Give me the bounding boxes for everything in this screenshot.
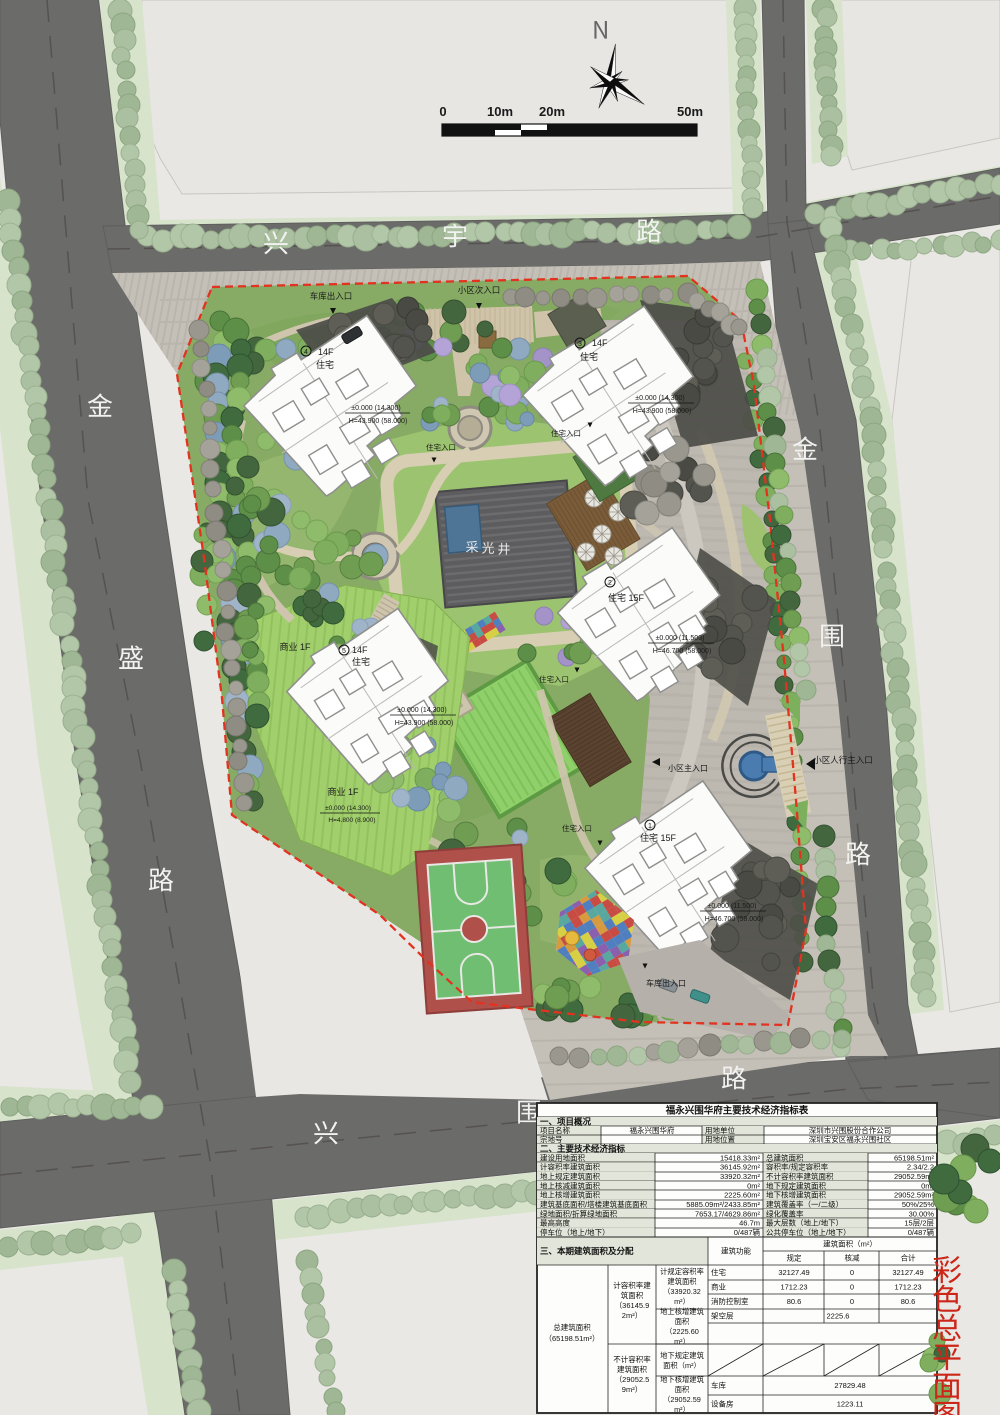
svg-text:筑面积: 筑面积: [621, 1290, 644, 1300]
svg-text:消防控制室: 消防控制室: [711, 1296, 749, 1306]
svg-text:小区次入口: 小区次入口: [458, 285, 501, 295]
svg-text:最大层数（地上/地下）: 最大层数（地上/地下）: [766, 1218, 843, 1228]
svg-text:绿地面积/折算绿地面积: 绿地面积/折算绿地面积: [540, 1208, 618, 1218]
svg-text:H=43.900 (58.000): H=43.900 (58.000): [395, 720, 454, 727]
svg-text:公共停车位（地上/地下）: 公共停车位（地上/地下）: [766, 1227, 851, 1237]
svg-text:（36145.9: （36145.9: [615, 1301, 650, 1310]
svg-text:建筑面积（m²）: 建筑面积（m²）: [823, 1239, 877, 1249]
svg-text:3: 3: [578, 341, 582, 348]
svg-text:32127.49: 32127.49: [778, 1268, 809, 1277]
svg-text:0/487辆: 0/487辆: [734, 1227, 761, 1237]
svg-text:总建筑面积: 总建筑面积: [553, 1322, 591, 1332]
svg-text:计规定容积率: 计规定容积率: [660, 1267, 704, 1276]
svg-text:绿化覆盖率: 绿化覆盖率: [766, 1208, 804, 1218]
svg-text:0: 0: [850, 1283, 854, 1292]
svg-text:用地单位: 用地单位: [705, 1125, 735, 1135]
svg-text:36145.92m²: 36145.92m²: [720, 1163, 761, 1172]
svg-text:7653.17/4629.86m²: 7653.17/4629.86m²: [695, 1209, 761, 1218]
svg-text:46.7m: 46.7m: [739, 1219, 760, 1228]
svg-text:最高高度: 最高高度: [540, 1218, 570, 1228]
svg-text:小区主入口: 小区主入口: [668, 763, 708, 773]
svg-text:核减: 核减: [845, 1253, 860, 1263]
svg-text:二、主要技术经济指标: 二、主要技术经济指标: [540, 1144, 626, 1154]
svg-text:建设用地面积: 建设用地面积: [540, 1152, 585, 1162]
svg-text:面积: 面积: [675, 1385, 690, 1394]
svg-text:0m²: 0m²: [747, 1181, 760, 1190]
svg-text:总建筑面积: 总建筑面积: [766, 1152, 804, 1162]
svg-text:小区人行主入口: 小区人行主入口: [813, 755, 873, 765]
svg-text:商业 1F: 商业 1F: [327, 786, 359, 797]
svg-text:（33920.32: （33920.32: [663, 1287, 701, 1296]
svg-text:H=46.700 (58.000): H=46.700 (58.000): [705, 916, 764, 923]
svg-text:2225.6: 2225.6: [827, 1312, 850, 1321]
svg-text:地下核增建筑面积: 地下核增建筑面积: [766, 1190, 826, 1200]
svg-text:建筑面积: 建筑面积: [667, 1277, 696, 1286]
svg-text:建筑功能: 建筑功能: [721, 1246, 751, 1256]
svg-text:14F: 14F: [592, 338, 608, 348]
svg-text:±0.000 (11.500): ±0.000 (11.500): [656, 635, 705, 642]
svg-text:27829.48: 27829.48: [834, 1381, 865, 1390]
svg-text:14F: 14F: [352, 645, 368, 655]
svg-text:（29052.59: （29052.59: [663, 1395, 701, 1404]
svg-text:深圳宝安区福永兴围社区: 深圳宝安区福永兴围社区: [809, 1134, 892, 1144]
svg-text:地上核减建筑面积: 地上核减建筑面积: [540, 1180, 600, 1190]
svg-text:5885.09m²/2433.85m²: 5885.09m²/2433.85m²: [686, 1200, 760, 1209]
svg-text:50m: 50m: [677, 104, 703, 119]
svg-text:H=43.900 (58.000): H=43.900 (58.000): [349, 418, 408, 425]
svg-text:住宅入口: 住宅入口: [539, 674, 569, 684]
svg-text:H=43.900 (58.000): H=43.900 (58.000): [633, 408, 692, 415]
svg-text:15层/2层: 15层/2层: [904, 1219, 934, 1228]
svg-text:住宅入口: 住宅入口: [426, 442, 456, 452]
svg-text:设备房: 设备房: [711, 1399, 734, 1409]
svg-text:车库出入口: 车库出入口: [310, 291, 353, 301]
svg-text:m²）: m²）: [674, 1405, 690, 1414]
svg-text:架空层: 架空层: [711, 1311, 734, 1321]
svg-text:住宅入口: 住宅入口: [551, 428, 581, 438]
svg-text:规定: 规定: [787, 1253, 802, 1263]
svg-text:2m²）: 2m²）: [622, 1311, 642, 1320]
svg-text:深圳市兴围股份合作公司: 深圳市兴围股份合作公司: [809, 1125, 892, 1135]
svg-text:住宅 15F: 住宅 15F: [640, 832, 677, 843]
svg-text:20m: 20m: [539, 104, 565, 119]
svg-text:±0.000 (14.300): ±0.000 (14.300): [325, 805, 371, 812]
svg-text:65198.51m²: 65198.51m²: [894, 1153, 935, 1162]
svg-text:项目名称: 项目名称: [540, 1125, 570, 1135]
svg-text:1: 1: [648, 823, 652, 830]
svg-text:住宅: 住宅: [580, 351, 598, 362]
svg-text:福永兴围华府主要技术经济指标表: 福永兴围华府主要技术经济指标表: [665, 1104, 809, 1116]
svg-text:（29052.5: （29052.5: [615, 1375, 650, 1384]
svg-text:29052.59m²: 29052.59m²: [894, 1172, 935, 1181]
svg-text:±0.000 (14.300): ±0.000 (14.300): [397, 707, 446, 714]
svg-text:用地位置: 用地位置: [705, 1134, 735, 1144]
svg-text:50%/25%: 50%/25%: [902, 1200, 934, 1209]
svg-text:2: 2: [608, 580, 612, 587]
svg-text:80.6: 80.6: [901, 1297, 916, 1306]
svg-text:±0.000 (11.500): ±0.000 (11.500): [708, 903, 757, 910]
svg-text:住宅: 住宅: [711, 1267, 726, 1277]
svg-text:15418.33m²: 15418.33m²: [720, 1153, 761, 1162]
svg-text:面积（m²）: 面积（m²）: [663, 1361, 701, 1370]
svg-text:10m: 10m: [487, 104, 513, 119]
svg-text:不计容积率: 不计容积率: [613, 1354, 651, 1364]
svg-text:车库出入口: 车库出入口: [646, 978, 686, 988]
svg-text:33920.32m²: 33920.32m²: [720, 1172, 761, 1181]
svg-text:1223.11: 1223.11: [837, 1400, 864, 1409]
svg-text:±0.000 (14.300): ±0.000 (14.300): [635, 395, 684, 402]
svg-text:地上规定建筑面积: 地上规定建筑面积: [540, 1171, 600, 1181]
svg-text:H=46.700 (58.000): H=46.700 (58.000): [653, 648, 712, 655]
svg-text:商业 1F: 商业 1F: [279, 641, 311, 652]
svg-text:面积: 面积: [675, 1317, 690, 1326]
svg-text:福永兴围华府: 福永兴围华府: [630, 1125, 675, 1135]
svg-text:地下规定建筑: 地下规定建筑: [660, 1351, 704, 1360]
svg-text:地上核增建筑: 地上核增建筑: [660, 1307, 704, 1316]
svg-text:住宅: 住宅: [316, 359, 334, 370]
svg-text:住宅: 住宅: [352, 656, 370, 667]
svg-text:29052.59m²: 29052.59m²: [894, 1191, 935, 1200]
svg-text:2.34/2.2: 2.34/2.2: [907, 1163, 934, 1172]
svg-text:住宅 15F: 住宅 15F: [608, 592, 645, 603]
svg-text:一、项目概况: 一、项目概况: [540, 1117, 592, 1127]
svg-text:三、本期建筑面积及分配: 三、本期建筑面积及分配: [540, 1246, 634, 1256]
svg-text:0: 0: [850, 1268, 854, 1277]
svg-text:0: 0: [439, 104, 446, 119]
svg-text:建筑面积: 建筑面积: [617, 1364, 647, 1374]
svg-text:80.6: 80.6: [787, 1297, 802, 1306]
svg-text:0: 0: [850, 1297, 854, 1306]
svg-text:5: 5: [342, 648, 346, 655]
svg-text:1712.23: 1712.23: [894, 1283, 921, 1292]
svg-text:停车位（地上/地下）: 停车位（地上/地下）: [540, 1227, 610, 1237]
svg-text:合计: 合计: [901, 1253, 916, 1263]
svg-text:地上核增建筑面积: 地上核增建筑面积: [540, 1190, 600, 1200]
svg-text:1712.23: 1712.23: [780, 1283, 807, 1292]
svg-text:车库: 车库: [711, 1380, 726, 1390]
svg-text:商业: 商业: [711, 1282, 726, 1292]
svg-text:±0.000 (14.300): ±0.000 (14.300): [351, 405, 400, 412]
svg-text:m²）: m²）: [674, 1337, 690, 1346]
svg-text:建筑覆盖率（一/二级）: 建筑覆盖率（一/二级）: [766, 1199, 843, 1209]
svg-text:不计容积率建筑面积: 不计容积率建筑面积: [766, 1171, 834, 1181]
svg-text:住宅入口: 住宅入口: [562, 823, 592, 833]
svg-text:地下规定建筑面积: 地下规定建筑面积: [766, 1180, 826, 1190]
svg-text:建筑基底面积/塔楼建筑基底面积: 建筑基底面积/塔楼建筑基底面积: [540, 1199, 648, 1209]
svg-text:9m²）: 9m²）: [622, 1385, 642, 1394]
svg-text:4: 4: [304, 349, 308, 356]
svg-text:（65198.51m²）: （65198.51m²）: [544, 1334, 599, 1343]
svg-text:30.00%: 30.00%: [909, 1209, 935, 1218]
svg-text:H=4.800 (8.900): H=4.800 (8.900): [328, 817, 375, 824]
svg-text:14F: 14F: [318, 347, 334, 357]
svg-text:计容积率建: 计容积率建: [613, 1280, 651, 1290]
svg-text:m²）: m²）: [674, 1297, 690, 1306]
svg-text:2225.60m²: 2225.60m²: [724, 1191, 760, 1200]
svg-text:32127.49: 32127.49: [892, 1268, 923, 1277]
svg-text:（2225.60: （2225.60: [665, 1327, 699, 1336]
svg-text:计容积率建筑面积: 计容积率建筑面积: [540, 1162, 600, 1172]
svg-text:0/487辆: 0/487辆: [908, 1227, 935, 1237]
svg-text:容积率/规定容积率: 容积率/规定容积率: [766, 1162, 829, 1172]
